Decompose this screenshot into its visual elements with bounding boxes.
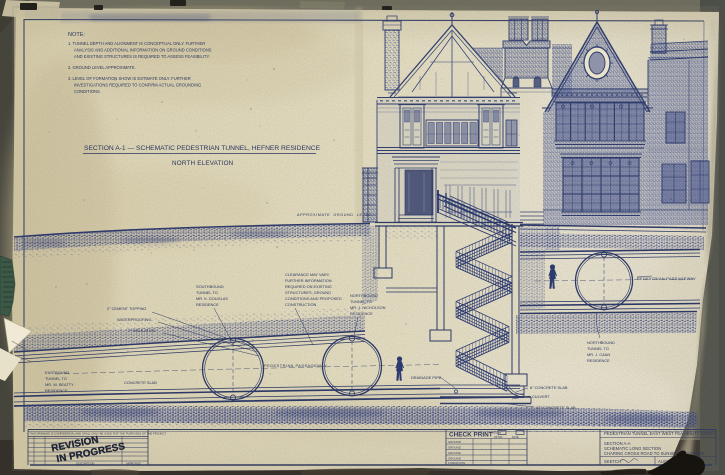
svg-text:MR. K. DOUGLAS: MR. K. DOUGLAS	[196, 296, 228, 301]
svg-text:CLEARANCE MAY VARY,: CLEARANCE MAY VARY,	[285, 272, 330, 277]
svg-text:PEDESTRIAN PASSAGEWAY: PEDESTRIAN PASSAGEWAY	[264, 363, 327, 368]
svg-text:MR. J. NICHOLSON: MR. J. NICHOLSON	[350, 305, 386, 310]
svg-text:TUNNEL TO: TUNNEL TO	[45, 376, 67, 381]
svg-text:2″ CEMENT TOPPING: 2″ CEMENT TOPPING	[107, 306, 146, 311]
svg-text:NOTE:: NOTE:	[68, 32, 86, 38]
svg-text:GROUND: GROUND	[448, 457, 461, 461]
svg-text:6″ CONCRETE SLAB: 6″ CONCRETE SLAB	[530, 385, 568, 390]
svg-text:APPROVED: APPROVED	[126, 462, 141, 466]
svg-text:AND EXISTING STRUCTURES IS REQ: AND EXISTING STRUCTURES IS REQUIRED TO A…	[74, 54, 210, 59]
svg-text:FURTHER INFORMATION: FURTHER INFORMATION	[285, 278, 332, 283]
svg-text:MR. W. BEATTY: MR. W. BEATTY	[45, 382, 74, 387]
svg-text:PEDESTRIAN TUNNEL EAST WEST FE: PEDESTRIAN TUNNEL EAST WEST FEASIBILITY …	[604, 431, 715, 436]
svg-text:GROUND: GROUND	[448, 451, 461, 455]
svg-text:CONSTRUCTION: CONSTRUCTION	[285, 302, 317, 307]
svg-text:RESIDENCE: RESIDENCE	[587, 358, 610, 363]
svg-text:CULVERT: CULVERT	[532, 394, 550, 399]
svg-text:TUNNEL TO: TUNNEL TO	[587, 346, 609, 351]
svg-text:INVESTIGATIONS REQUIRED TO CON: INVESTIGATIONS REQUIRED TO CONFIRM ACTUA…	[74, 83, 201, 88]
svg-text:APPROXIMATE GROUND LEVEL: APPROXIMATE GROUND LEVEL	[297, 213, 371, 217]
svg-text:DATE: DATE	[512, 435, 519, 439]
svg-text:PEDESTRIAN PASSAGEWAY: PEDESTRIAN PASSAGEWAY	[637, 276, 696, 281]
svg-text:RESIDENCE: RESIDENCE	[196, 302, 219, 307]
svg-text:WATERPROOFING: WATERPROOFING	[117, 317, 151, 322]
svg-text:CONDITIONS AND PROPOSED: CONDITIONS AND PROPOSED	[285, 296, 342, 301]
svg-text:PRELIM: PRELIM	[490, 431, 502, 435]
svg-text:DRAINAGE PIPE: DRAINAGE PIPE	[411, 375, 442, 380]
svg-text:EASTBOUND: EASTBOUND	[45, 370, 69, 375]
svg-text:RESIDENCE: RESIDENCE	[350, 311, 373, 316]
svg-text:12″ CONCRETE SLAB: 12″ CONCRETE SLAB	[536, 405, 576, 410]
svg-text:DESCRIPTION: DESCRIPTION	[76, 462, 94, 466]
svg-text:ANALYSIS AND ADDITIONAL INFORM: ANALYSIS AND ADDITIONAL INFORMATION ON G…	[74, 48, 212, 53]
svg-text:THIS DRAWING IS CONFIDENTIAL A: THIS DRAWING IS CONFIDENTIAL AND SHALL O…	[30, 432, 167, 436]
svg-text:NORTH ELEVATION: NORTH ELEVATION	[172, 160, 234, 167]
svg-text:1. TUNNEL DEPTH AND ALIGNMENT: 1. TUNNEL DEPTH AND ALIGNMENT IS CONCEPT…	[68, 41, 205, 46]
svg-text:TUNNEL TO: TUNNEL TO	[196, 290, 218, 295]
svg-text:2. GROUND LEVEL APPROXIMATE.: 2. GROUND LEVEL APPROXIMATE.	[68, 65, 136, 70]
svg-text:INITIAL: INITIAL	[494, 435, 503, 439]
svg-text:CHECK PRINT: CHECK PRINT	[449, 432, 493, 439]
svg-text:SKETCH: SKETCH	[604, 459, 621, 464]
svg-text:GROUND: GROUND	[448, 440, 461, 444]
svg-text:SOUTHBOUND: SOUTHBOUND	[196, 284, 224, 289]
svg-text:3. LEVEL OF FORMATION SHOW IS: 3. LEVEL OF FORMATION SHOW IS ESTIMATE O…	[68, 76, 191, 81]
svg-text:FORMATION: FORMATION	[448, 461, 465, 465]
svg-text:SECTION A-1 — SCHEMATIC PEDEST: SECTION A-1 — SCHEMATIC PEDESTRIAN TUNNE…	[84, 145, 321, 152]
svg-text:CONDITIONS.: CONDITIONS.	[74, 89, 101, 94]
svg-text:MR. J. CAAN: MR. J. CAAN	[587, 352, 610, 357]
svg-text:REQUIRED ON EXISTING: REQUIRED ON EXISTING	[285, 284, 332, 289]
svg-text:RESIDENCE: RESIDENCE	[45, 388, 68, 393]
svg-text:GROUND: GROUND	[448, 446, 461, 450]
svg-text:STRUCTURES, GROUND: STRUCTURES, GROUND	[285, 290, 331, 295]
svg-text:TUNNEL TO: TUNNEL TO	[350, 299, 372, 304]
svg-text:NORTHBOUND: NORTHBOUND	[350, 293, 378, 298]
svg-text:CONCRETE SLAB: CONCRETE SLAB	[124, 380, 157, 385]
